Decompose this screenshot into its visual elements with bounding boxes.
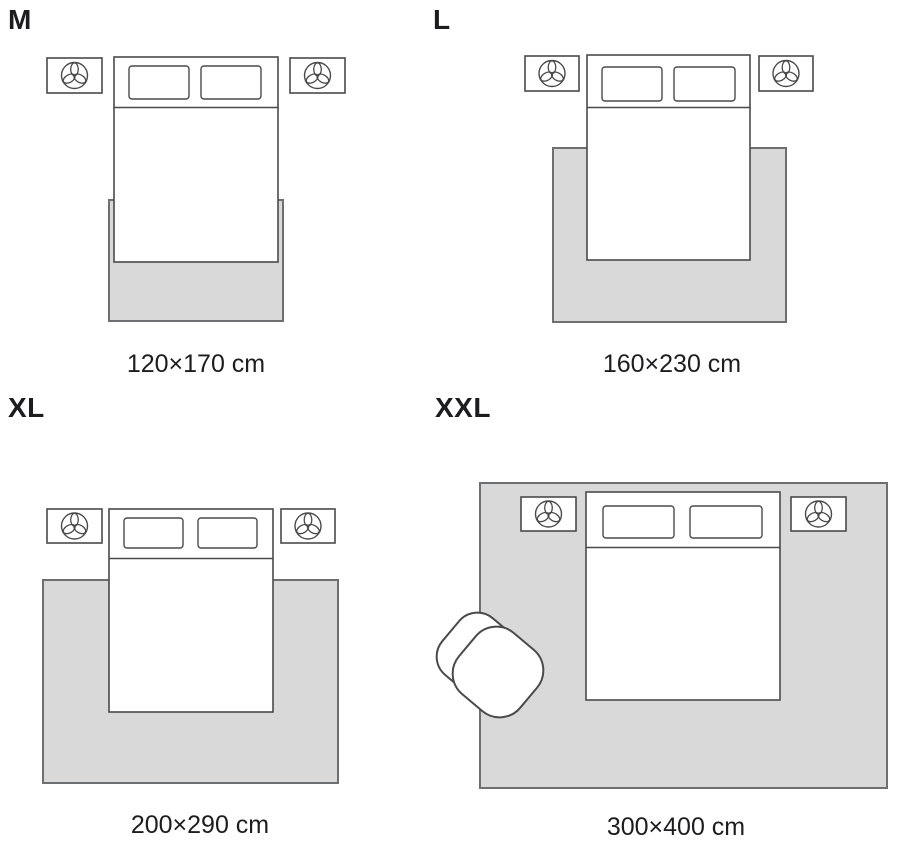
nightstand-left	[47, 509, 102, 543]
size-label-xl: XL	[8, 394, 45, 422]
dimensions-caption-xxl: 300×400 cm	[576, 812, 776, 842]
pillow-left	[124, 518, 183, 548]
rug-size-guide: M L XL XXL 120×170 cm 160×230 cm 200×290…	[0, 0, 900, 850]
dimensions-caption-xl: 200×290 cm	[100, 810, 300, 840]
nightstand-right	[759, 56, 813, 91]
dimensions-caption-m: 120×170 cm	[96, 349, 296, 379]
bed	[586, 492, 780, 700]
size-label-xxl: XXL	[435, 394, 491, 422]
pillow-right	[198, 518, 257, 548]
bed	[587, 55, 750, 260]
pillow-left	[129, 66, 189, 99]
pillow-right	[690, 506, 762, 538]
bed	[109, 509, 273, 712]
nightstand-right	[290, 58, 345, 93]
diagram-xxl	[427, 483, 887, 788]
size-guide-drawing	[0, 0, 900, 850]
nightstand-right	[281, 509, 335, 543]
dimensions-caption-l: 160×230 cm	[572, 349, 772, 379]
diagram-l	[525, 55, 813, 322]
diagram-xl	[43, 509, 338, 783]
pillow-right	[674, 67, 735, 101]
size-label-m: M	[8, 6, 32, 34]
size-label-l: L	[433, 6, 451, 34]
nightstand-left	[521, 497, 576, 531]
pillow-left	[602, 67, 662, 101]
pillow-right	[201, 66, 261, 99]
nightstand-right	[791, 497, 846, 531]
diagram-m	[47, 57, 345, 321]
pillow-left	[603, 506, 674, 538]
nightstand-left	[525, 56, 579, 91]
nightstand-left	[47, 58, 102, 93]
bed	[114, 57, 278, 262]
